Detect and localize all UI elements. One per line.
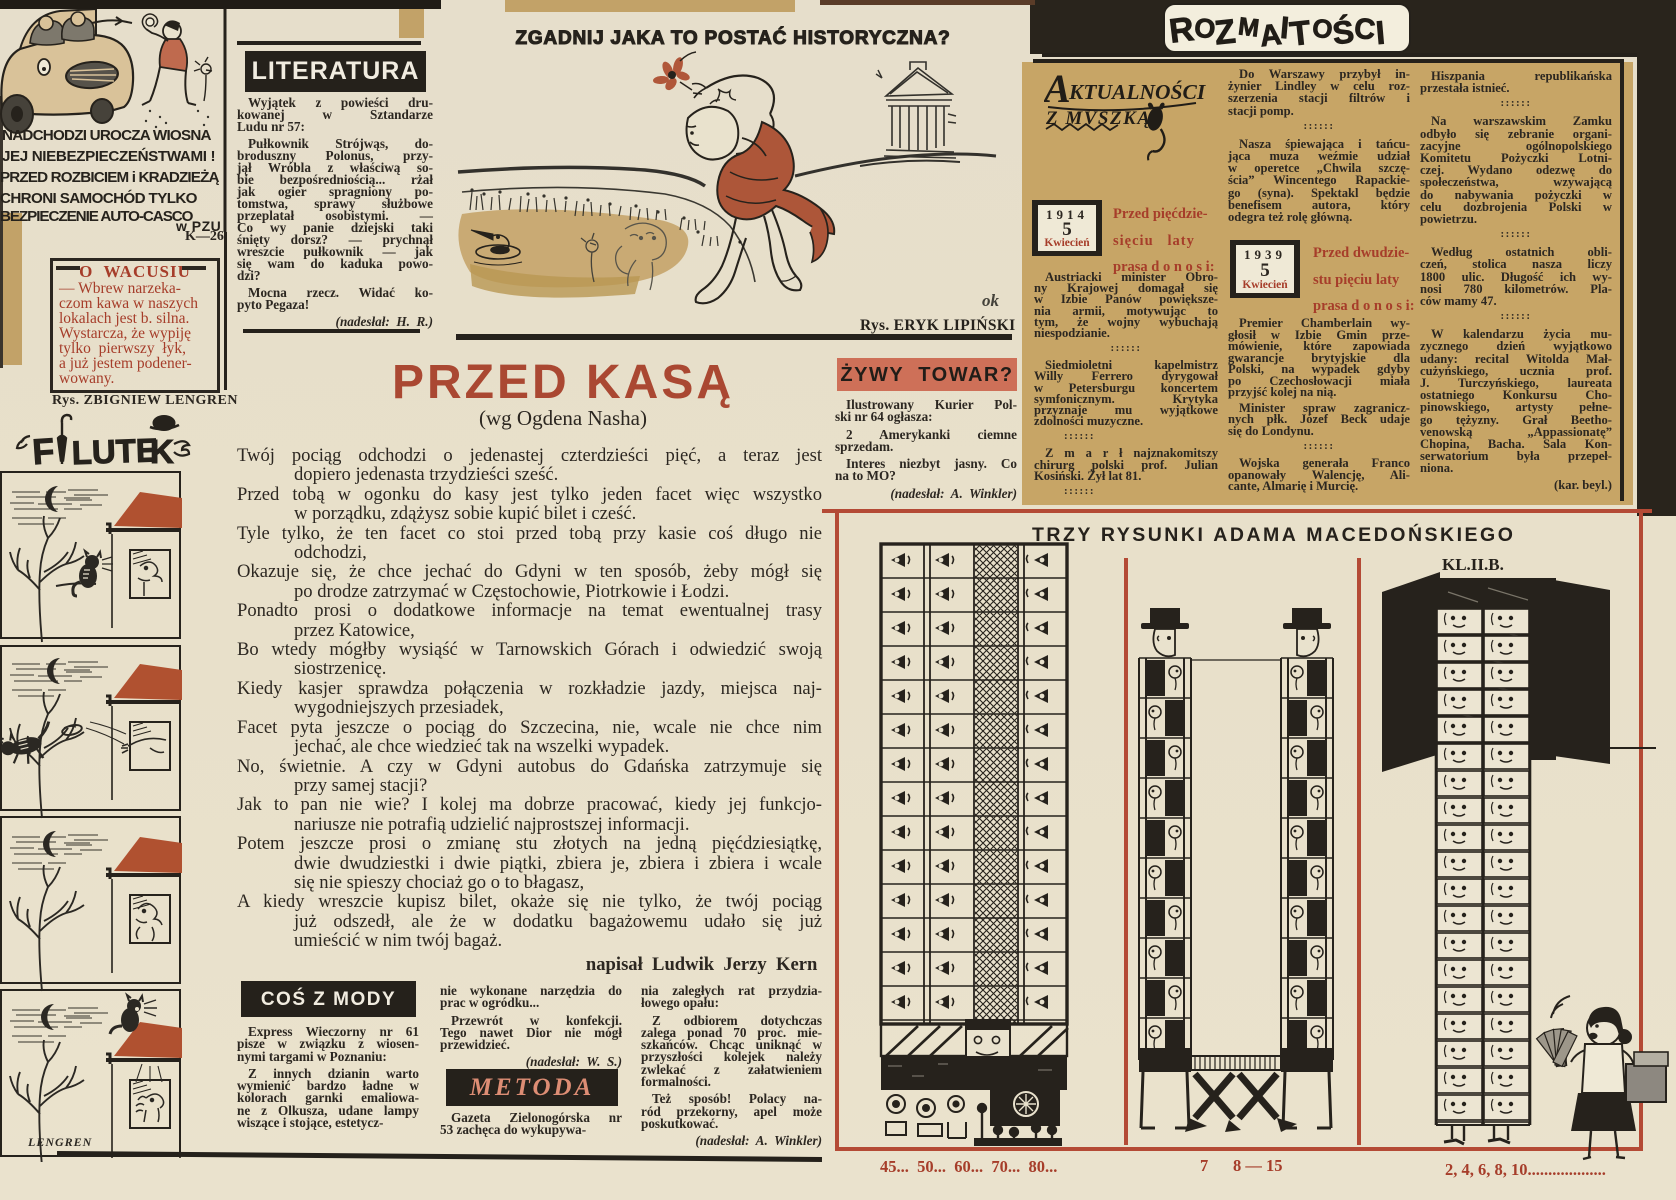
svg-text:BEZPIECZENIE AUTO-CASCO: BEZPIECZENIE AUTO-CASCO	[0, 208, 194, 225]
svg-text:Rys. ERYK LIPIŃSKI: Rys. ERYK LIPIŃSKI	[860, 317, 1015, 334]
svg-text:Z: Z	[1213, 12, 1238, 50]
svg-text:A: A	[1044, 66, 1071, 111]
svg-text:LUTE: LUTE	[71, 431, 158, 471]
svg-text:Ś: Ś	[1330, 13, 1356, 50]
svg-text:LENGREN: LENGREN	[27, 1135, 93, 1149]
svg-text:NADCHODZI UROCZA WIOSNA: NADCHODZI UROCZA WIOSNA	[2, 127, 212, 144]
svg-text:w PZU: w PZU	[175, 218, 221, 232]
svg-text:PRZED ROZBICIEM i KRADZIEŻĄ: PRZED ROZBICIEM i KRADZIEŻĄ	[0, 169, 220, 186]
svg-text:M: M	[1237, 12, 1261, 42]
svg-text:ZGADNIJ JAKA TO POSTAĆ HISTORY: ZGADNIJ JAKA TO POSTAĆ HISTORYCZNA?	[515, 27, 950, 49]
svg-text:T: T	[1288, 14, 1313, 50]
svg-text:JEJ NIEBEZPIECZEŃSTWAMI !: JEJ NIEBEZPIECZEŃSTWAMI !	[2, 148, 216, 165]
svg-text:KTUALNOŚCI: KTUALNOŚCI	[1068, 80, 1206, 104]
svg-text:C: C	[1353, 13, 1377, 47]
svg-text:F: F	[31, 430, 56, 472]
svg-text:ok: ok	[982, 291, 1000, 310]
svg-text:R: R	[1168, 10, 1196, 50]
svg-text:I: I	[1374, 14, 1386, 50]
svg-text:K: K	[150, 433, 174, 470]
svg-text:CHRONI SAMOCHÓD TYLKO: CHRONI SAMOCHÓD TYLKO	[0, 189, 198, 207]
svg-text:KL.II.B.: KL.II.B.	[1442, 555, 1504, 574]
